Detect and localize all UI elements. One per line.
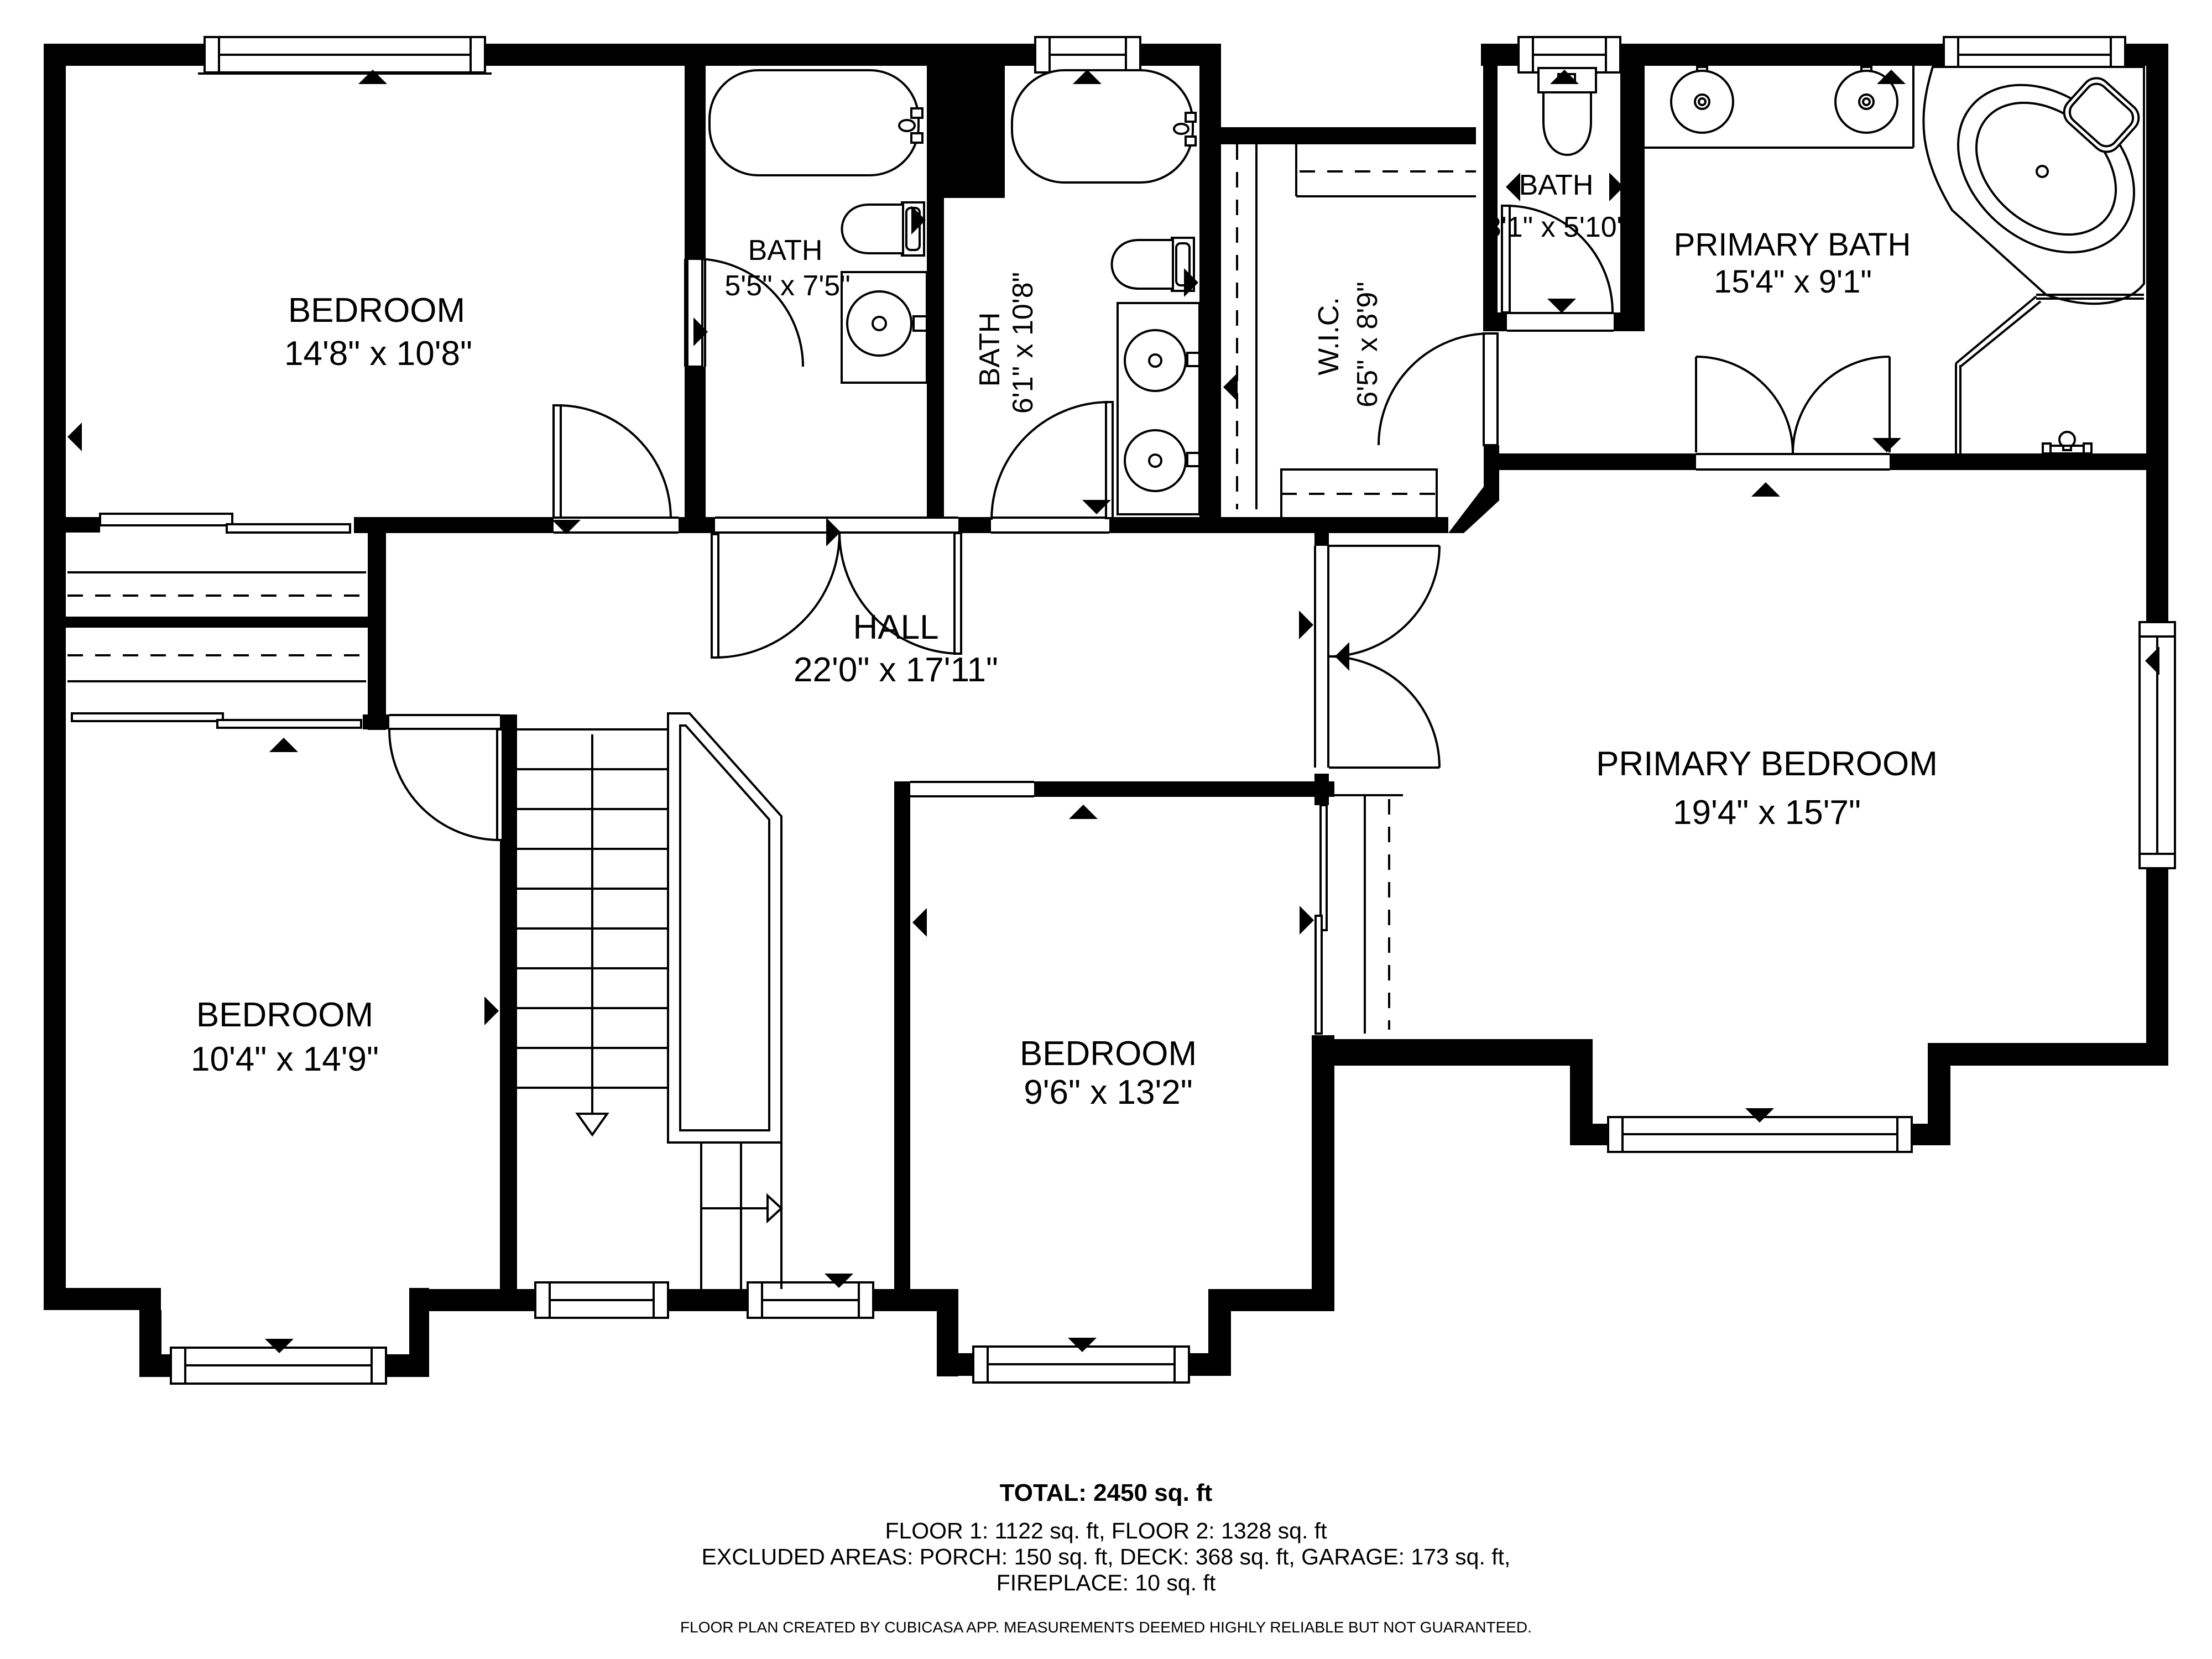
svg-text:BEDROOM: BEDROOM [1020,1035,1197,1073]
svg-text:19'4" x 15'7": 19'4" x 15'7" [1673,794,1861,832]
svg-text:BATH: BATH [748,234,823,267]
svg-text:9'6" x 13'2": 9'6" x 13'2" [1024,1073,1193,1112]
svg-text:PRIMARY BEDROOM: PRIMARY BEDROOM [1596,745,1938,783]
svg-text:BEDROOM: BEDROOM [288,291,465,330]
svg-text:BATH: BATH [1519,169,1594,201]
svg-text:PRIMARY BATH: PRIMARY BATH [1674,227,1911,263]
svg-text:5'5" x 7'5": 5'5" x 7'5" [724,270,850,302]
svg-text:10'4" x 14'9": 10'4" x 14'9" [191,1040,379,1078]
svg-text:FLOOR PLAN CREATED BY CUBICASA: FLOOR PLAN CREATED BY CUBICASA APP. MEAS… [680,1619,1532,1636]
svg-text:BATH: BATH [974,312,1006,387]
svg-text:6'5" x 8'9": 6'5" x 8'9" [1352,281,1384,407]
svg-text:6'1" x 10'8": 6'1" x 10'8" [1007,272,1039,414]
svg-text:FLOOR 1: 1122 sq. ft, FLOOR 2:: FLOOR 1: 1122 sq. ft, FLOOR 2: 1328 sq. … [885,1518,1327,1543]
svg-text:W.I.C.: W.I.C. [1313,297,1345,375]
svg-text:FIREPLACE: 10 sq. ft: FIREPLACE: 10 sq. ft [997,1570,1216,1595]
svg-text:22'0" x 17'11": 22'0" x 17'11" [794,651,998,689]
svg-text:BEDROOM: BEDROOM [196,996,373,1034]
svg-text:3'1" x 5'10": 3'1" x 5'10" [1485,211,1627,243]
svg-text:15'4" x 9'1": 15'4" x 9'1" [1714,264,1872,300]
svg-text:EXCLUDED AREAS: PORCH: 150 sq.: EXCLUDED AREAS: PORCH: 150 sq. ft, DECK:… [702,1544,1511,1569]
svg-text:HALL: HALL [853,608,938,646]
svg-text:14'8" x 10'8": 14'8" x 10'8" [284,335,472,373]
svg-text:TOTAL: 2450 sq. ft: TOTAL: 2450 sq. ft [1000,1479,1213,1506]
